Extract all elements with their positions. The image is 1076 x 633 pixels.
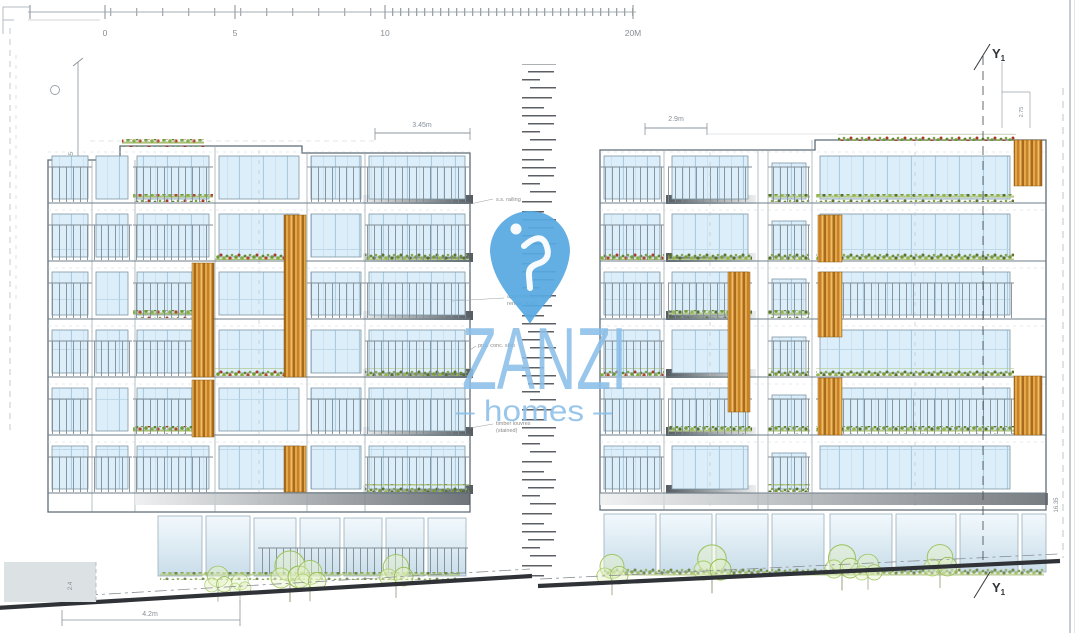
balcony-railing <box>48 399 92 434</box>
balcony-railing <box>768 225 810 260</box>
balcony-railing <box>365 167 469 202</box>
bottom-left-dim-label: 4.2m <box>142 611 158 618</box>
annotation-louvres-2: (stained) <box>496 428 518 434</box>
balcony-railing <box>365 399 469 434</box>
basement-dim-label: 2.4 <box>68 581 74 590</box>
balcony-railing <box>768 283 810 318</box>
balcony-railing <box>307 399 365 434</box>
right-building-width-dim: 2.9m <box>668 116 684 123</box>
balcony-railing <box>768 341 810 376</box>
section-marker-y1-top: Y1 <box>974 44 1006 70</box>
balcony-railing <box>365 283 469 318</box>
balcony-railing <box>600 457 664 492</box>
left-building-width-dim: 3.45m <box>412 122 432 129</box>
balcony-railing <box>768 457 810 492</box>
balcony-railing <box>768 399 810 434</box>
balcony-railing <box>365 457 469 492</box>
window-glazing <box>311 446 361 489</box>
window-glazing <box>311 214 361 257</box>
balcony-railing <box>133 225 213 260</box>
scale-label-5: 5 <box>233 28 238 38</box>
y1-bottom-sub: 1 <box>1001 588 1006 597</box>
svg-text:Y1: Y1 <box>992 580 1006 597</box>
balcony-railing <box>307 283 365 318</box>
elevation-drawing: 0 5 10 20M 20.15 <box>0 0 1076 633</box>
balcony-railing <box>133 457 213 492</box>
balcony-railing <box>48 225 92 260</box>
timber-louvre-screen <box>818 378 842 435</box>
watermark-tagline-text: – homes – <box>456 395 612 428</box>
balcony-railing <box>48 457 92 492</box>
balcony-railing <box>365 341 469 376</box>
balcony-railing <box>48 283 92 318</box>
roof-planter <box>838 134 1016 141</box>
window-glazing <box>820 330 1010 373</box>
storefront-glazing <box>772 514 824 572</box>
storefront-glazing <box>206 516 250 576</box>
window-glazing <box>96 156 128 199</box>
right-upper-dim-label: 2.75 <box>1019 107 1025 118</box>
timber-louvre-screen <box>1014 376 1042 435</box>
balcony-railing <box>48 341 92 376</box>
timber-louvre-screen <box>284 446 306 492</box>
y1-bottom-label: Y <box>992 580 1001 595</box>
scale-bar: 0 5 10 20M <box>28 5 641 38</box>
ground-slab-band <box>600 493 1048 505</box>
balcony-railing <box>133 167 213 202</box>
balcony-railing <box>768 167 810 202</box>
svg-text:Y1: Y1 <box>992 46 1006 63</box>
window-glazing <box>219 388 299 431</box>
balcony-railing <box>365 225 469 260</box>
scale-label-10: 10 <box>380 28 390 38</box>
timber-louvre-screen <box>818 272 842 337</box>
scale-label-20m: 20M <box>625 28 642 38</box>
watermark-brand-text: ZANZI <box>462 309 627 408</box>
window-glazing <box>96 388 128 431</box>
elevation-sheet: 0 5 10 20M 20.15 <box>0 0 1076 633</box>
timber-louvre-screen <box>192 380 214 437</box>
balcony-railing <box>92 457 132 492</box>
left-building-elevation <box>48 139 473 512</box>
timber-louvre-screen <box>1014 140 1042 186</box>
annotation-railing: s.s. railing <box>496 197 521 203</box>
right-margin-dim-label: 16.35 <box>1054 497 1060 513</box>
window-glazing <box>311 330 361 373</box>
timber-louvre-screen <box>728 272 750 412</box>
y1-top-label: Y <box>992 46 1001 61</box>
timber-louvre-screen <box>284 215 306 377</box>
balcony-railing <box>600 225 664 260</box>
balcony-railing <box>92 225 132 260</box>
ground-slab-band <box>135 492 470 505</box>
balcony-railing <box>307 167 365 202</box>
roof-planter <box>122 139 204 147</box>
y1-top-sub: 1 <box>1001 54 1006 63</box>
balcony-railing <box>48 167 92 202</box>
storefront-glazing <box>158 516 202 576</box>
timber-louvre-screen <box>192 263 214 377</box>
scale-label-0: 0 <box>103 28 108 38</box>
balcony-railing <box>92 341 132 376</box>
window-glazing <box>96 272 128 315</box>
balcony-railing <box>600 167 664 202</box>
timber-louvre-screen <box>818 215 842 262</box>
